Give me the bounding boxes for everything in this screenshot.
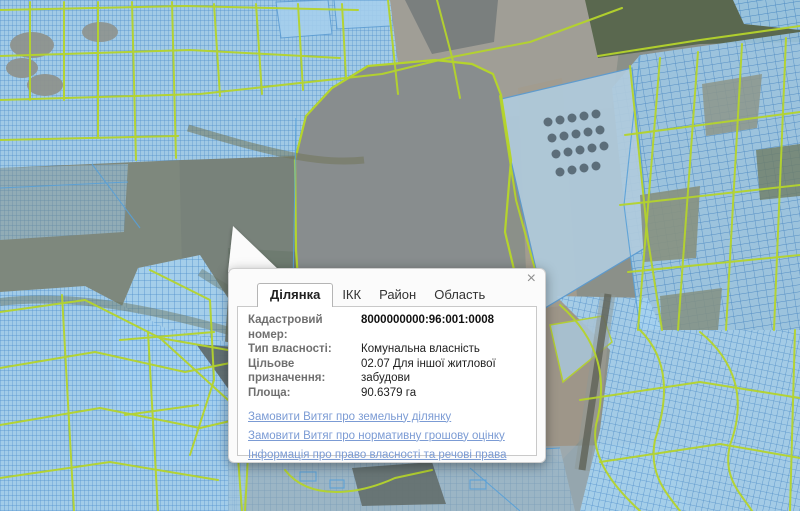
field-ownership-type: Тип власності: Комунальна власність (248, 342, 526, 357)
field-designated-purpose: Цільове призначення: 02.07 Для іншої жит… (248, 357, 526, 386)
link-order-parcel-extract[interactable]: Замовити Витяг про земельну ділянку (248, 411, 526, 423)
cadastral-number-value: 8000000000:96:001:0008 (361, 313, 494, 342)
designated-purpose-value: 02.07 Для іншої житлової забудови (361, 357, 526, 386)
tab-rayon[interactable]: Район (370, 284, 425, 306)
parcel-info-popup: × Ділянка ІКК Район Область Кадастровий … (228, 268, 546, 463)
map-viewport[interactable]: × Ділянка ІКК Район Область Кадастровий … (0, 0, 800, 511)
tab-oblast[interactable]: Область (425, 284, 494, 306)
field-area: Площа: 90.6379 га (248, 386, 526, 401)
ownership-type-value: Комунальна власність (361, 342, 480, 357)
tab-dilyanka[interactable]: Ділянка (257, 283, 333, 307)
tab-ikk[interactable]: ІКК (333, 284, 370, 306)
popup-links: Замовити Витяг про земельну ділянку Замо… (248, 411, 526, 461)
field-label: Тип власності: (248, 342, 361, 357)
link-order-monetary-valuation[interactable]: Замовити Витяг про нормативну грошову оц… (248, 430, 526, 442)
field-label: Площа: (248, 386, 361, 401)
popup-tabs: Ділянка ІКК Район Область (257, 283, 537, 306)
area-value: 90.6379 га (361, 386, 416, 401)
field-cadastral-number: Кадастровий номер: 8000000000:96:001:000… (248, 313, 526, 342)
parcel-details-panel: Кадастровий номер: 8000000000:96:001:000… (237, 306, 537, 456)
field-label: Кадастровий номер: (248, 313, 361, 342)
field-label: Цільове призначення: (248, 357, 361, 386)
link-ownership-rights-info[interactable]: Інформація про право власності та речові… (248, 449, 526, 461)
